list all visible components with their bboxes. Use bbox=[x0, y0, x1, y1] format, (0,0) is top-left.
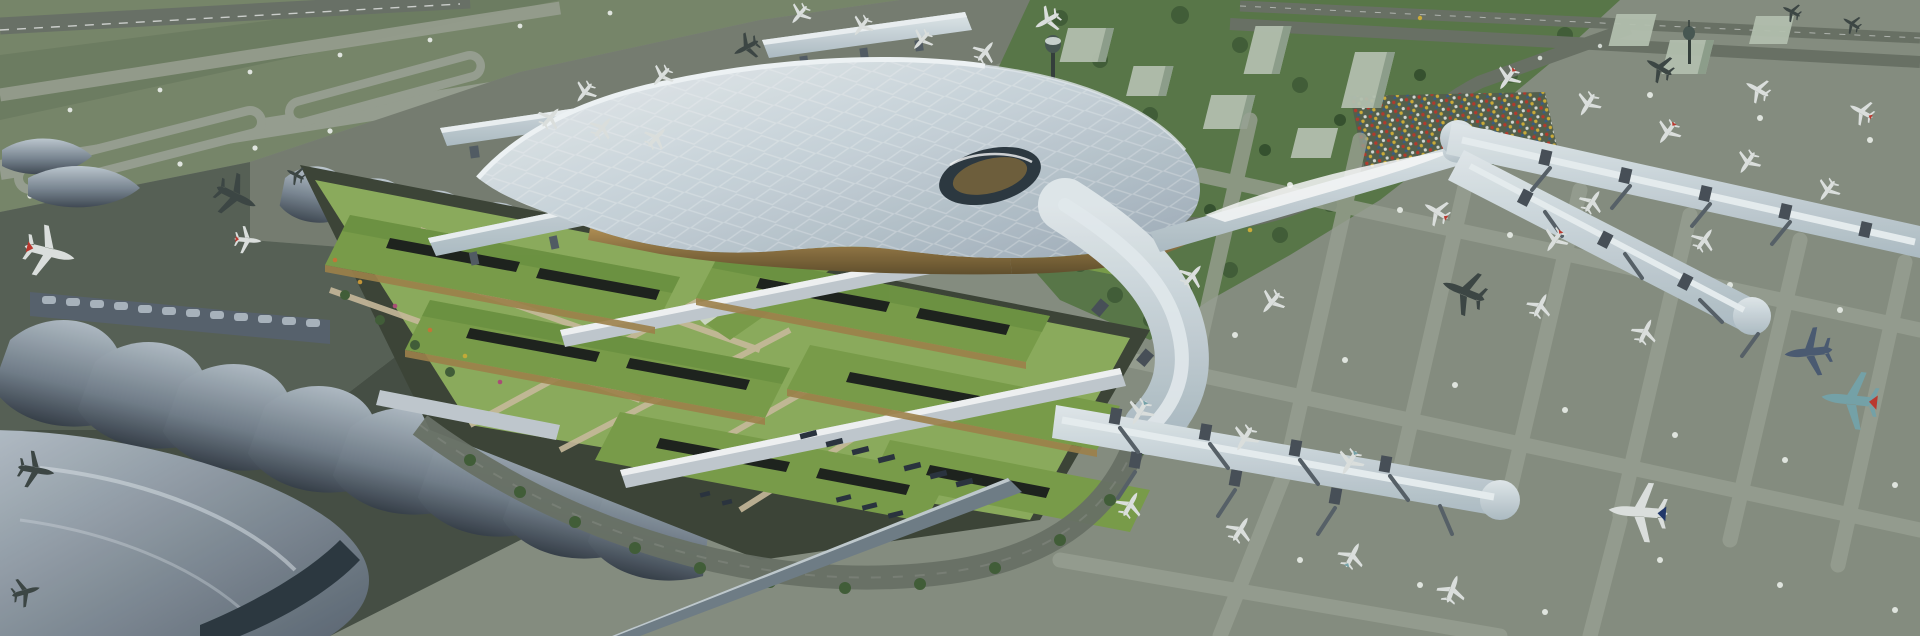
airport-rendering-stage: Aerial rendering of a large airport: a s… bbox=[0, 0, 1920, 636]
atmosphere-overlay bbox=[0, 0, 1920, 636]
airport-rendering: Aerial rendering of a large airport: a s… bbox=[0, 0, 1920, 636]
